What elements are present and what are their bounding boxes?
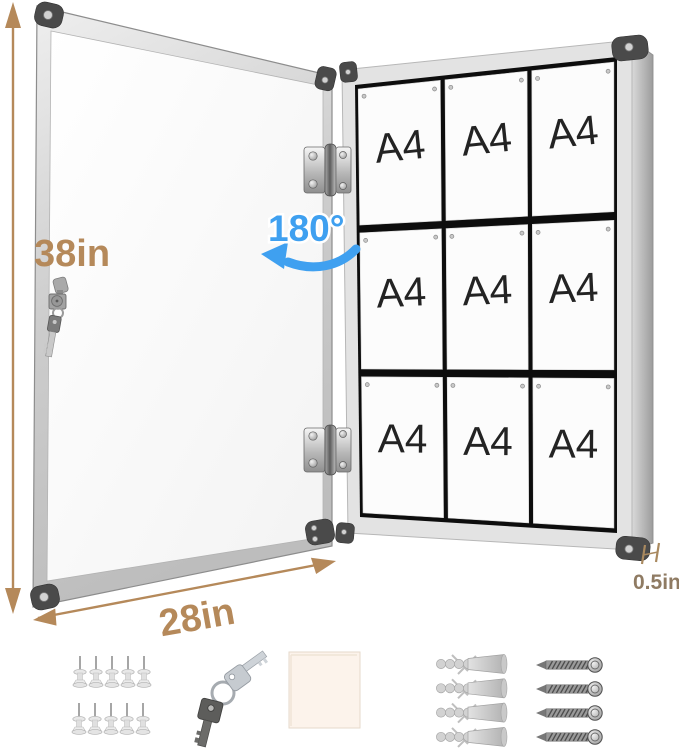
arrow-right-icon <box>311 553 338 574</box>
swing-angle-label: 180° <box>268 208 345 249</box>
sheet-pin-icon <box>362 94 366 98</box>
hinge-bottom <box>304 425 351 475</box>
screw-icon <box>536 682 602 696</box>
a4-sheet-label: A4 <box>378 415 428 461</box>
a4-sheet-label: A4 <box>375 268 427 316</box>
bulletin-board-product-image: A4A4A4A4A4A4A4A4A4 38in <box>0 0 679 755</box>
screw-icon <box>536 706 602 720</box>
key-silver-icon <box>223 649 273 693</box>
adhesive-pad-image <box>289 652 360 728</box>
sheet-pin-icon <box>536 76 540 80</box>
sheet-pin-icon <box>519 78 523 82</box>
sheet-pin-icon <box>606 385 610 389</box>
wall-anchor-icon <box>436 679 507 699</box>
push-pin-icon <box>89 656 103 687</box>
a4-sheet-label: A4 <box>372 121 427 172</box>
wall-anchor-icon <box>436 727 507 747</box>
display-board: A4A4A4A4A4A4A4A4A4 <box>335 34 653 561</box>
push-pin-icon <box>104 703 118 734</box>
push-pin-icon <box>73 656 87 687</box>
wall-anchors-image <box>436 655 507 747</box>
sheet-pin-icon <box>450 234 454 238</box>
sheet-pin-icon <box>364 238 368 242</box>
push-pin-icon <box>121 656 135 687</box>
sheet-pin-icon <box>451 383 455 387</box>
push-pin-icon <box>88 703 102 734</box>
keys-image <box>191 649 273 749</box>
width-label: 28in <box>156 591 238 646</box>
sheet-pin-icon <box>606 227 610 231</box>
a4-sheet-label: A4 <box>463 418 513 464</box>
sheet-pin-icon <box>433 87 437 91</box>
push-pin-icon <box>137 656 151 687</box>
push-pin-icon <box>72 703 86 734</box>
hinge-top <box>304 144 351 196</box>
sheet-pin-icon <box>521 384 525 388</box>
depth-label: 0.5in <box>633 571 679 594</box>
sheet-pin-icon <box>537 384 541 388</box>
wall-anchor-icon <box>436 703 507 723</box>
sheet-pin-icon <box>435 383 439 387</box>
door-inner-panel <box>47 31 323 581</box>
a4-sheet-label: A4 <box>459 114 514 165</box>
push-pin-icon <box>105 656 119 687</box>
wall-anchor-icon <box>436 655 507 675</box>
board-side-edge <box>632 40 653 550</box>
sheet-pin-icon <box>606 69 610 73</box>
a4-sheet-label: A4 <box>549 420 599 466</box>
lock-keyhole <box>56 300 59 303</box>
key-dark-icon <box>191 698 224 749</box>
a4-sheet-label: A4 <box>461 266 513 314</box>
screw-icon <box>536 658 602 672</box>
sheet-pin-icon <box>536 230 540 234</box>
cabinet-door <box>29 0 338 611</box>
sheet-pin-icon <box>520 231 524 235</box>
push-pin-icon <box>120 703 134 734</box>
sheet-pin-icon <box>434 235 438 239</box>
sheet-pin-icon <box>365 383 369 387</box>
sheet-pin-icon <box>449 85 453 89</box>
screw-icon <box>536 730 602 744</box>
push-pin-icon <box>136 703 150 734</box>
screws-image <box>536 658 602 744</box>
arrow-up-icon <box>5 2 21 28</box>
accessories-row <box>72 649 602 749</box>
arrow-left-icon <box>32 609 59 630</box>
a4-sheet-label: A4 <box>546 107 601 158</box>
sheet-grid: A4A4A4A4A4A4A4A4A4 <box>358 62 614 528</box>
a4-sheet-label: A4 <box>547 264 599 312</box>
height-label: 38in <box>34 233 110 275</box>
push-pins-image <box>72 656 151 734</box>
arrow-down-icon <box>5 588 21 614</box>
